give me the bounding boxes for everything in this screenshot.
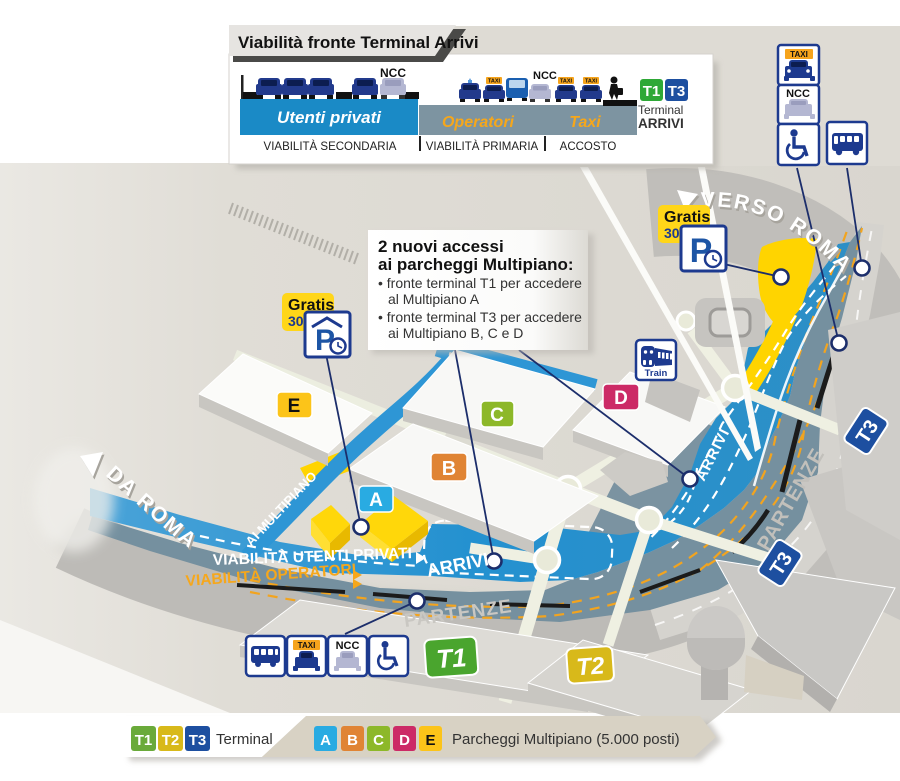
svg-text:• fronte terminal T3 per acced: • fronte terminal T3 per accedere xyxy=(378,309,582,325)
svg-text:C: C xyxy=(373,732,384,749)
svg-text:TAXI: TAXI xyxy=(790,50,808,59)
svg-text:T3: T3 xyxy=(668,83,686,100)
svg-text:D: D xyxy=(399,732,410,749)
svg-text:A: A xyxy=(369,490,383,511)
svg-text:Operatori: Operatori xyxy=(442,114,515,131)
svg-text:T1: T1 xyxy=(135,732,153,749)
svg-text:2 nuovi accessi: 2 nuovi accessi xyxy=(378,237,504,256)
svg-text:T2: T2 xyxy=(162,732,180,749)
svg-text:ARRIVI: ARRIVI xyxy=(638,116,684,131)
svg-text:Taxi: Taxi xyxy=(569,114,601,131)
svg-text:Parcheggi Multipiano (5.000 po: Parcheggi Multipiano (5.000 posti) xyxy=(452,731,680,748)
svg-text:T3: T3 xyxy=(189,732,207,749)
svg-text:NCC: NCC xyxy=(336,640,360,652)
svg-text:Terminal: Terminal xyxy=(216,731,273,748)
svg-text:E: E xyxy=(425,732,435,749)
svg-text:TAXI: TAXI xyxy=(585,79,598,85)
svg-text:E: E xyxy=(288,396,301,417)
svg-text:TAXI: TAXI xyxy=(488,79,501,85)
svg-text:ai Multipiano B, C e D: ai Multipiano B, C e D xyxy=(388,325,523,341)
svg-text:T1: T1 xyxy=(435,642,467,674)
svg-text:C: C xyxy=(490,405,504,426)
svg-text:NCC: NCC xyxy=(786,88,810,100)
svg-text:VIABILITÀ PRIMARIA: VIABILITÀ PRIMARIA xyxy=(426,140,539,153)
svg-text:NCC: NCC xyxy=(533,70,557,82)
svg-text:NCC: NCC xyxy=(380,66,406,80)
svg-text:B: B xyxy=(442,458,456,480)
svg-text:• fronte terminal T1 per acced: • fronte terminal T1 per accedere xyxy=(378,275,582,291)
svg-text:Viabilità fronte Terminal Arri: Viabilità fronte Terminal Arrivi xyxy=(238,33,479,52)
svg-text:al Multipiano A: al Multipiano A xyxy=(388,291,480,307)
svg-text:Utenti privati: Utenti privati xyxy=(277,108,382,127)
svg-text:ai parcheggi Multipiano:: ai parcheggi Multipiano: xyxy=(378,255,574,274)
svg-text:D: D xyxy=(614,388,628,409)
svg-text:T1: T1 xyxy=(643,83,661,100)
svg-text:Terminal: Terminal xyxy=(638,103,683,117)
svg-text:B: B xyxy=(347,732,358,749)
svg-text:Train: Train xyxy=(645,368,668,379)
svg-text:T2: T2 xyxy=(575,652,605,681)
svg-text:TAXI: TAXI xyxy=(560,79,573,85)
svg-text:VIABILITÀ SECONDARIA: VIABILITÀ SECONDARIA xyxy=(264,140,397,153)
svg-text:Gratis: Gratis xyxy=(664,209,710,226)
svg-text:A: A xyxy=(320,732,331,749)
svg-text:ACCOSTO: ACCOSTO xyxy=(560,141,617,153)
svg-text:TAXI: TAXI xyxy=(298,641,316,650)
